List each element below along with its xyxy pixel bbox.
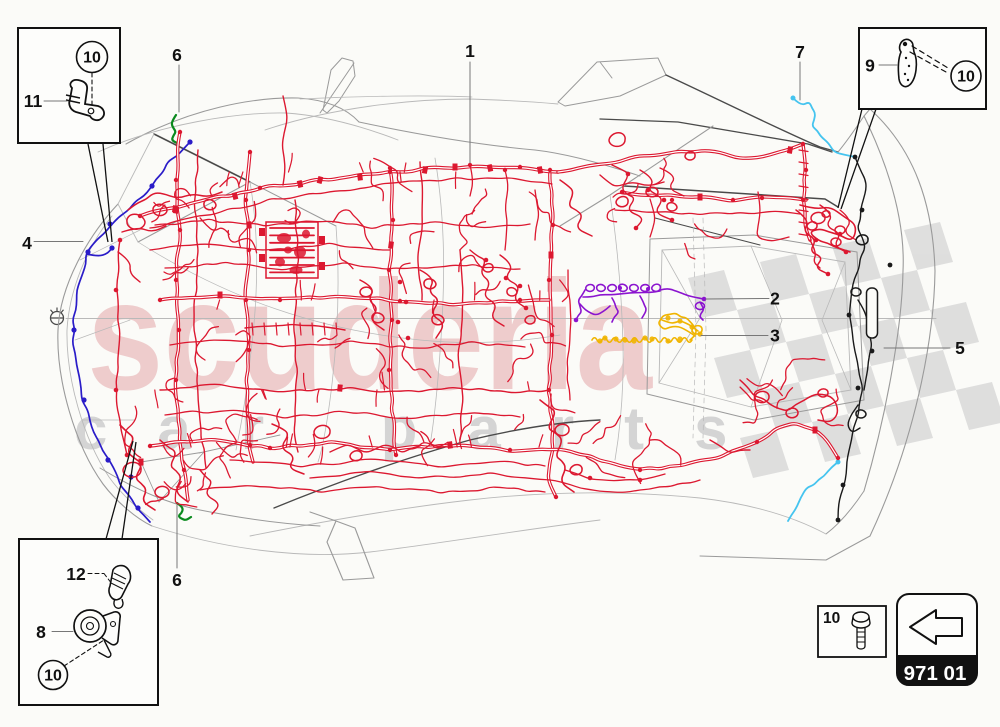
svg-text:6: 6 xyxy=(172,45,182,65)
svg-text:5: 5 xyxy=(955,338,965,358)
svg-text:971 01: 971 01 xyxy=(904,662,967,685)
svg-text:3: 3 xyxy=(770,326,780,346)
svg-text:2: 2 xyxy=(770,289,780,309)
svg-text:10: 10 xyxy=(957,69,975,86)
svg-text:7: 7 xyxy=(795,42,805,62)
svg-text:4: 4 xyxy=(22,233,32,253)
svg-text:10: 10 xyxy=(83,50,101,67)
svg-text:9: 9 xyxy=(865,56,875,76)
svg-text:10: 10 xyxy=(44,668,62,685)
svg-text:6: 6 xyxy=(172,570,182,590)
svg-text:12: 12 xyxy=(66,564,86,584)
svg-text:11: 11 xyxy=(24,91,43,111)
svg-text:10: 10 xyxy=(823,610,840,627)
svg-text:8: 8 xyxy=(36,622,46,642)
svg-text:1: 1 xyxy=(465,41,475,61)
